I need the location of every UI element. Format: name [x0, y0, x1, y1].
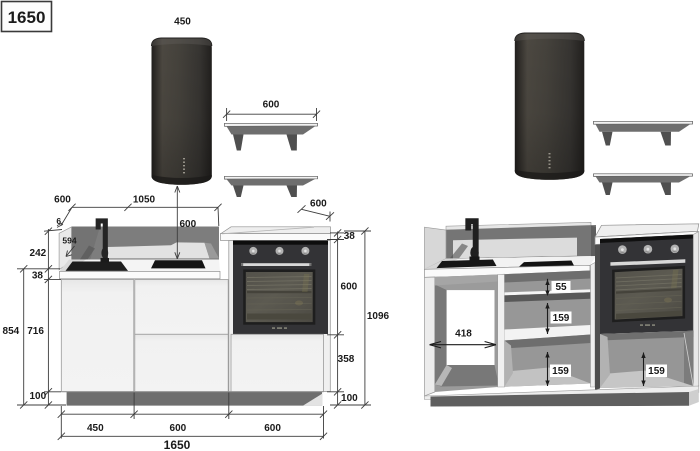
- svg-text:418: 418: [455, 329, 472, 340]
- svg-text:716: 716: [27, 326, 44, 337]
- svg-text:594: 594: [62, 236, 76, 246]
- svg-text:6: 6: [56, 216, 61, 226]
- svg-text:358: 358: [338, 354, 355, 365]
- svg-text:1650: 1650: [8, 8, 46, 27]
- svg-text:600: 600: [263, 100, 280, 111]
- svg-text:38: 38: [32, 271, 44, 282]
- svg-text:600: 600: [341, 282, 358, 293]
- svg-text:159: 159: [648, 366, 665, 377]
- svg-text:450: 450: [87, 423, 104, 434]
- svg-text:100: 100: [29, 391, 46, 402]
- svg-text:38: 38: [344, 231, 356, 242]
- svg-text:100: 100: [341, 393, 358, 404]
- svg-text:600: 600: [264, 423, 281, 434]
- svg-text:1050: 1050: [133, 195, 156, 206]
- svg-text:600: 600: [54, 195, 71, 206]
- svg-text:600: 600: [310, 199, 327, 210]
- svg-text:600: 600: [180, 219, 197, 230]
- svg-text:450: 450: [174, 17, 191, 28]
- svg-text:854: 854: [3, 326, 20, 337]
- svg-text:159: 159: [553, 313, 570, 324]
- svg-text:1096: 1096: [367, 311, 390, 322]
- svg-text:55: 55: [555, 282, 567, 293]
- svg-text:159: 159: [552, 366, 569, 377]
- svg-text:242: 242: [30, 248, 47, 259]
- svg-text:600: 600: [170, 423, 187, 434]
- svg-text:1650: 1650: [164, 438, 191, 451]
